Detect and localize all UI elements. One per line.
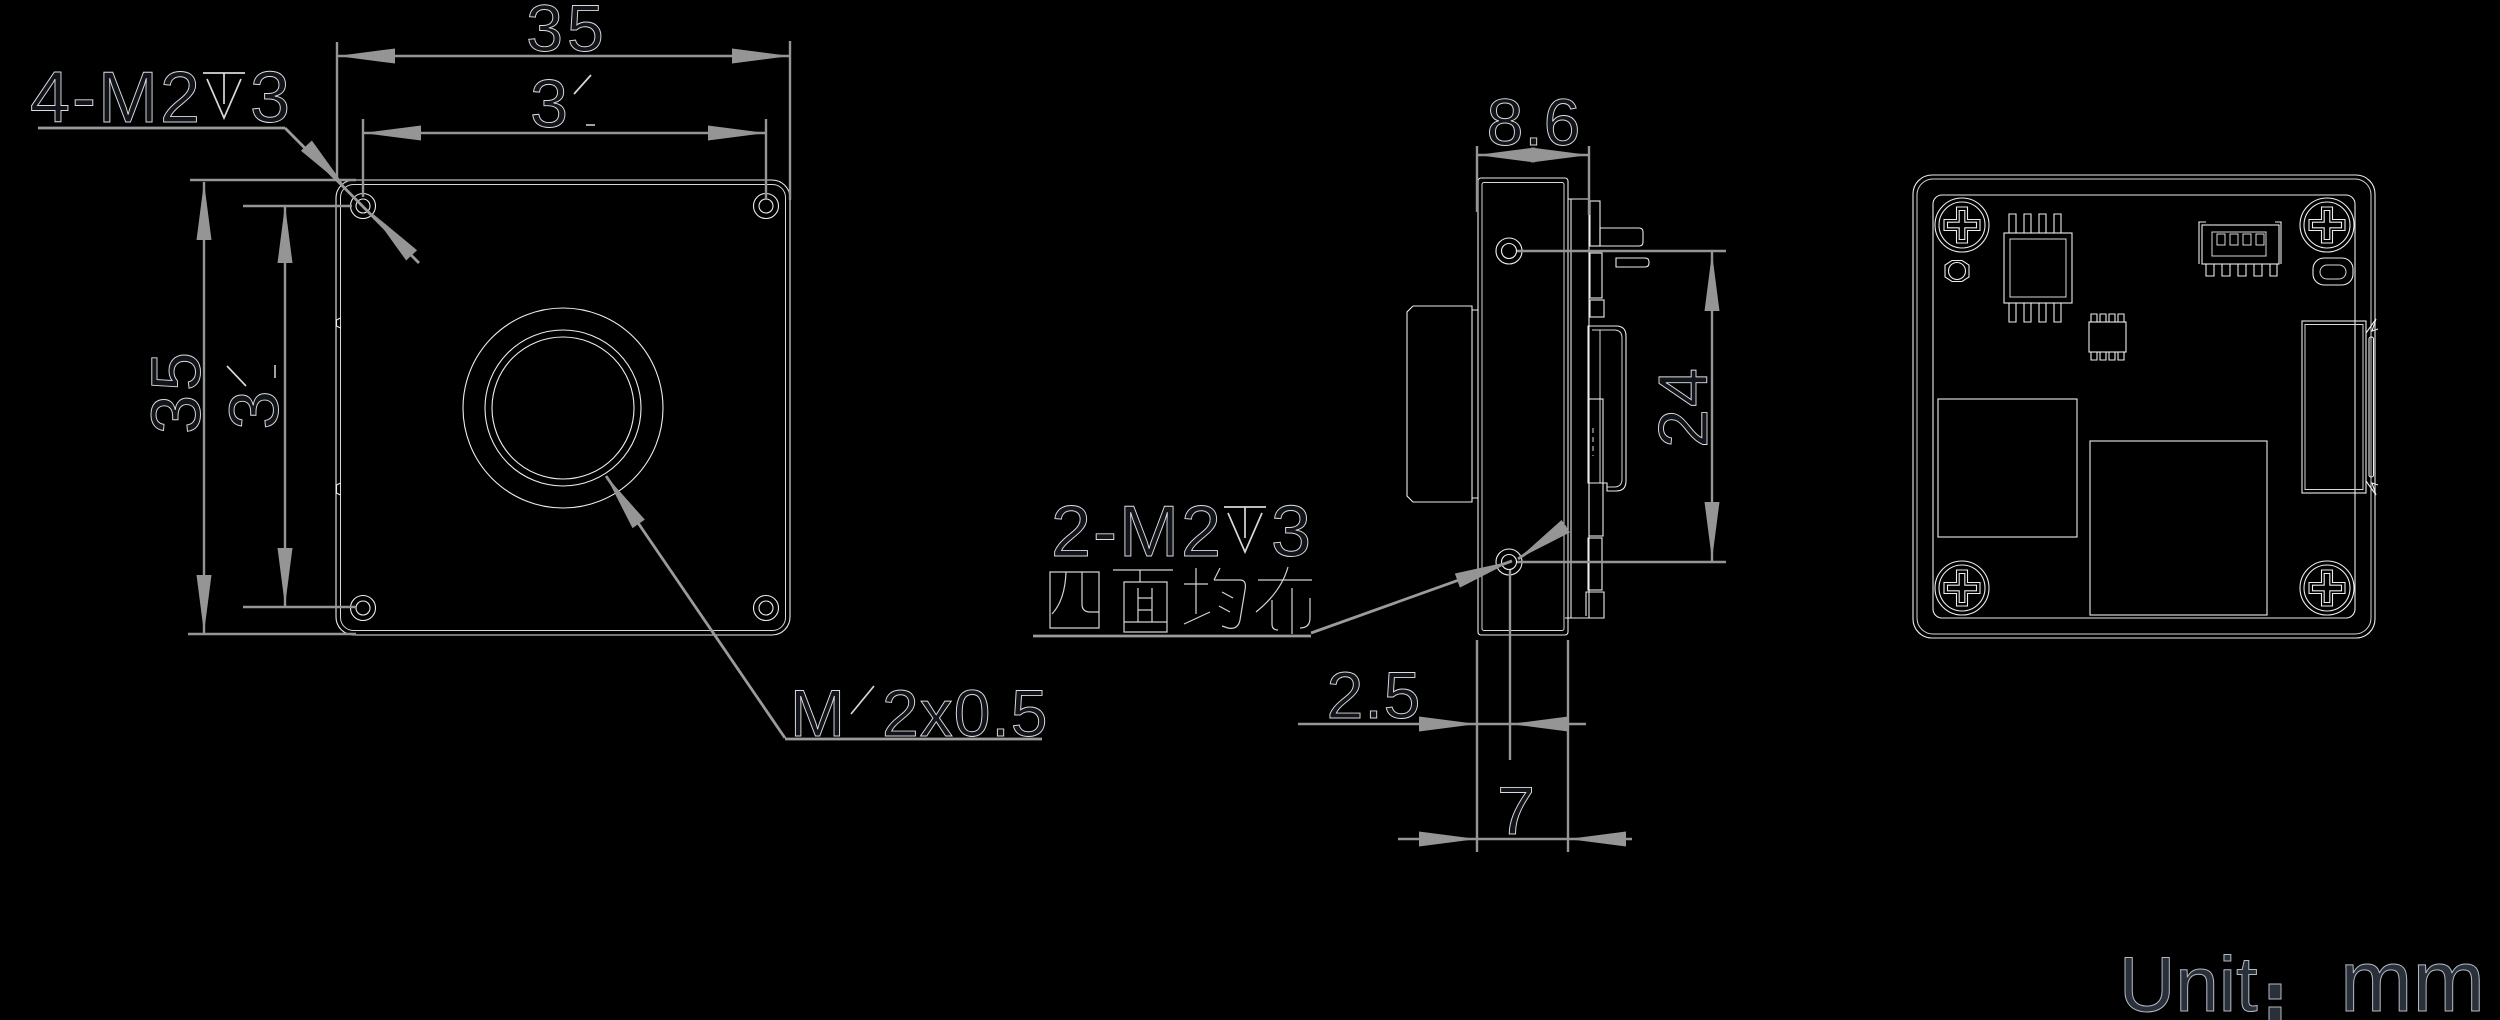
svg-text:35: 35 (526, 0, 607, 65)
svg-text:3: 3 (1271, 492, 1311, 572)
svg-text:2-M2: 2-M2 (1051, 492, 1223, 572)
svg-text:3: 3 (215, 391, 293, 430)
svg-text:8.6: 8.6 (1487, 85, 1582, 159)
svg-text:2.5: 2.5 (1327, 658, 1422, 732)
svg-text:7: 7 (1497, 773, 1535, 849)
svg-text:3: 3 (530, 66, 568, 142)
svg-text:2x0.5: 2x0.5 (882, 676, 1048, 750)
svg-text:mm: mm (2340, 933, 2485, 1020)
svg-text:24: 24 (1644, 366, 1722, 448)
svg-text:3: 3 (250, 58, 290, 138)
svg-text:4-M2: 4-M2 (30, 58, 202, 138)
svg-text:Unit: Unit (2119, 940, 2258, 1020)
svg-text:M: M (790, 676, 845, 750)
svg-text:35: 35 (137, 348, 215, 434)
